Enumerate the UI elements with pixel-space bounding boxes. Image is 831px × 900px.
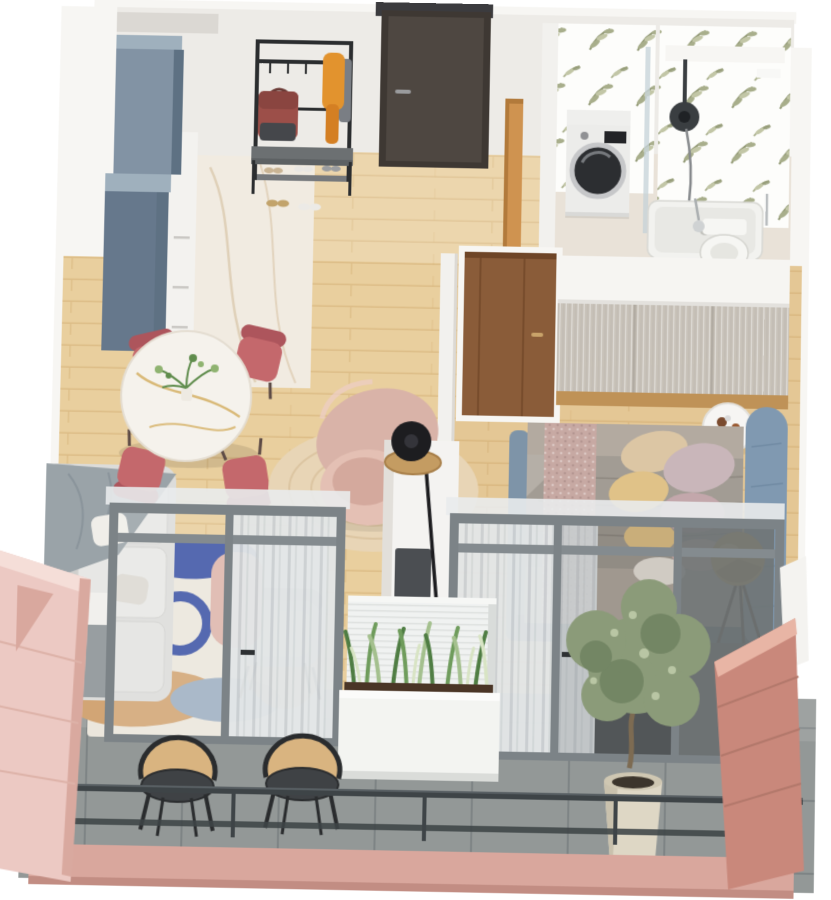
balcony-door-left [100, 486, 350, 746]
washing-machine [565, 110, 631, 219]
floorplan-canvas [0, 0, 831, 900]
apartment-render [0, 0, 831, 900]
front-door [373, 2, 494, 169]
kitchen-base-cabinet [105, 173, 171, 192]
wardrobe-doors [556, 303, 789, 395]
wall-niche [104, 12, 219, 34]
floorplan-scene [0, 0, 831, 900]
door-handle [395, 90, 411, 94]
apartment-floorplan [0, 0, 825, 899]
hanging-scarf [322, 53, 345, 111]
door-handle [241, 650, 255, 655]
olive-pot [603, 772, 663, 860]
wardrobe [556, 255, 790, 409]
bedroom-door-open [456, 246, 563, 423]
sheer-curtain [227, 515, 340, 742]
planter-box [338, 690, 500, 782]
wall-tv [394, 548, 431, 599]
bathroom-door-open [503, 99, 524, 253]
front-door-leaf [386, 16, 484, 162]
door-handle [531, 333, 543, 337]
